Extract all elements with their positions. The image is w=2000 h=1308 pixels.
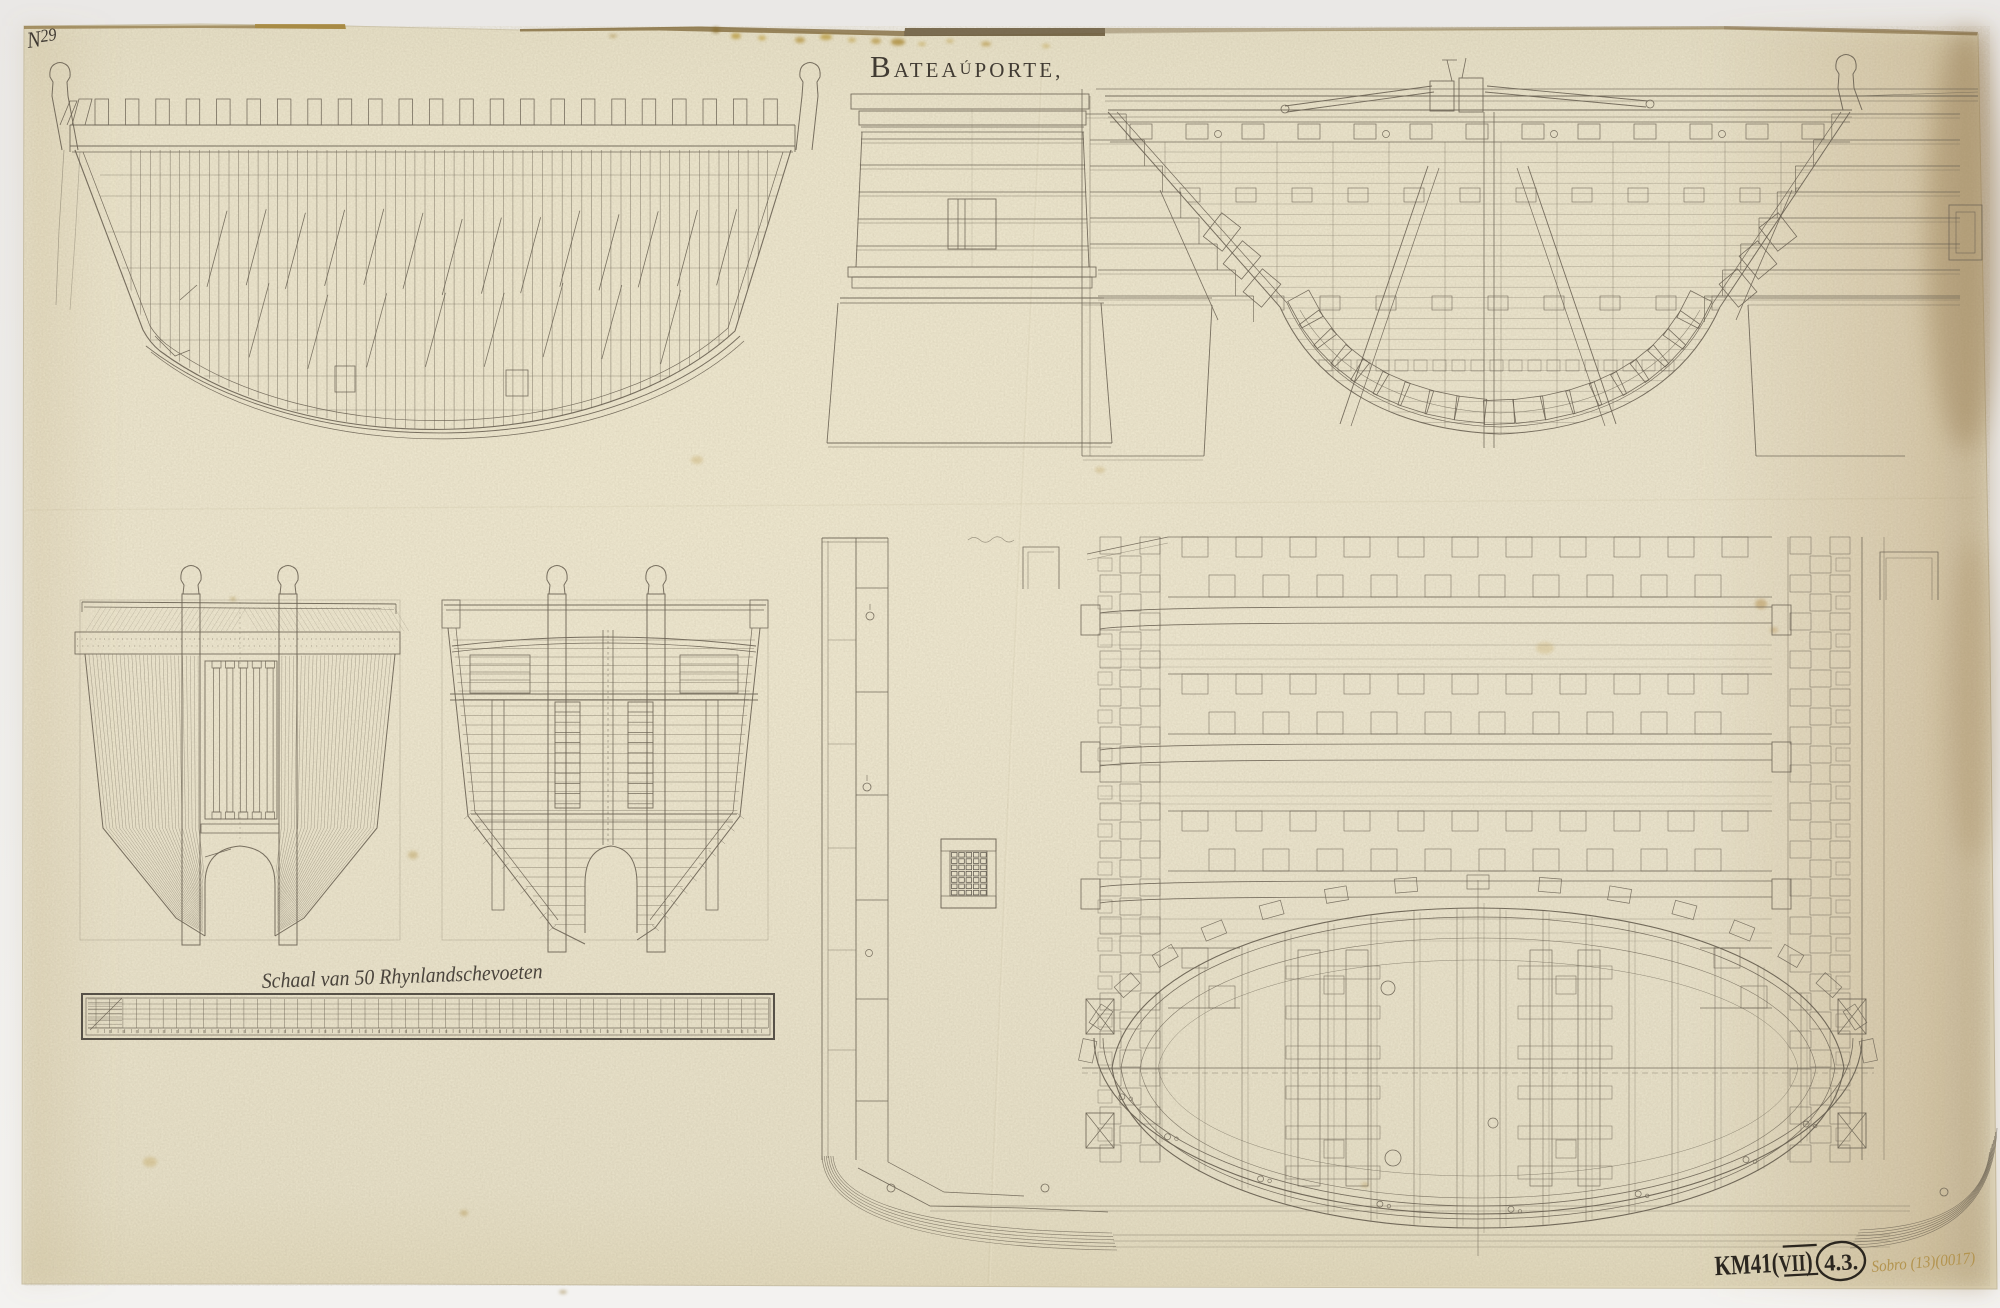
svg-text:4.3.: 4.3. xyxy=(1823,1249,1858,1276)
svg-text:KM41(VII): KM41(VII) xyxy=(1714,1246,1813,1282)
